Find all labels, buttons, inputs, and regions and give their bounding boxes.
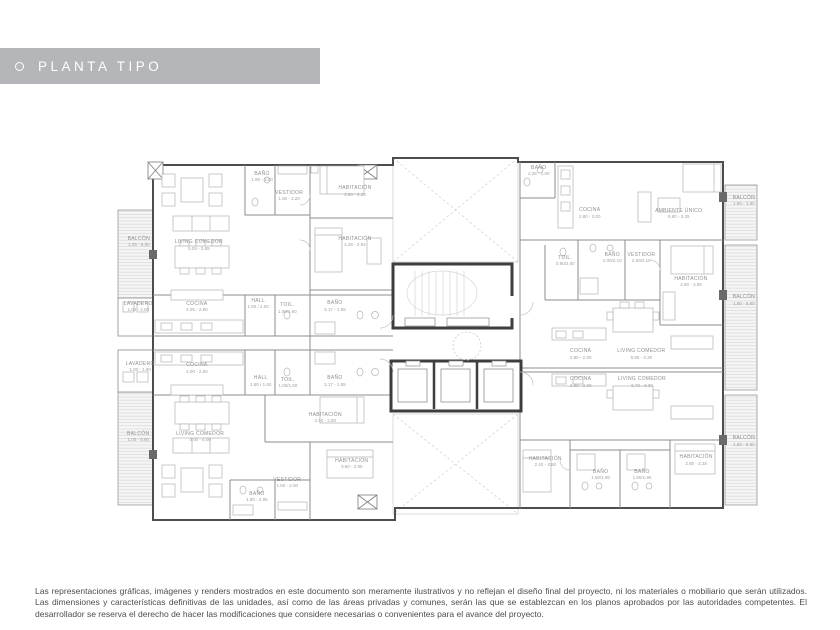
light-wells <box>393 158 518 514</box>
page-title: PLANTA TIPO <box>38 59 162 74</box>
circle-bullet-icon <box>15 62 24 71</box>
brochure-page: PLANTA TIPO <box>0 0 840 630</box>
floor-plan-drawing <box>115 150 760 530</box>
legal-disclaimer: Las representaciones gráficas, imágenes … <box>35 586 807 621</box>
elevator-core <box>391 361 521 411</box>
section-banner: PLANTA TIPO <box>0 48 320 84</box>
floor-plan: BALCÓN1.05 - 8.90LAVADERO1.00 - 2.00LAVA… <box>115 150 760 530</box>
stair-core <box>393 264 515 328</box>
